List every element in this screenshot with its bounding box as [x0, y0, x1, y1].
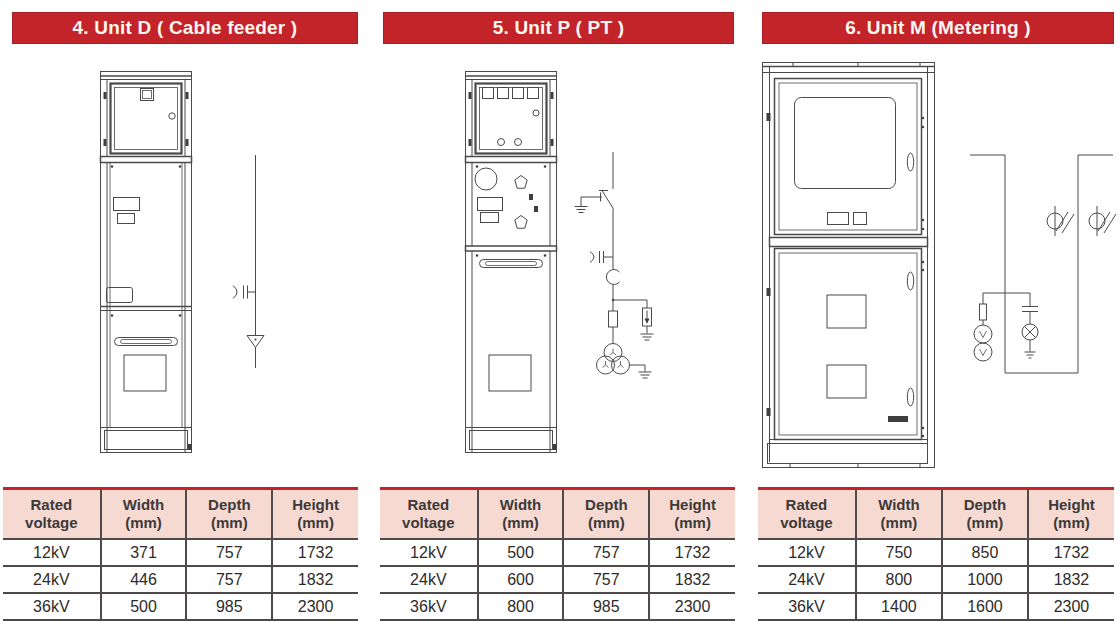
- cell-width: 446: [101, 566, 187, 593]
- spec-row-24kv: 24kV 446 757 1832: [3, 566, 358, 593]
- cell-rated-voltage: 24kV: [380, 566, 478, 593]
- cell-rated-voltage: 12kV: [3, 539, 101, 566]
- unit-m-drawing: [758, 55, 1120, 475]
- unit-d-banner: 4. Unit D ( Cable feeder ): [12, 12, 358, 44]
- cell-height: 2300: [1028, 593, 1114, 620]
- voltmeter-symbol: [974, 325, 992, 343]
- cell-rated-voltage: 12kV: [380, 539, 478, 566]
- unit-d-drawing: [88, 55, 350, 470]
- voltmeter-branch: [974, 293, 992, 361]
- cell-depth: 1600: [942, 593, 1028, 620]
- col-header-rated-voltage: Rated voltage: [3, 489, 101, 540]
- current-transformer-symbol: [1047, 206, 1074, 236]
- cell-depth: 757: [186, 539, 272, 566]
- unit-m-title: 6. Unit M (Metering ): [845, 17, 1031, 39]
- cell-rated-voltage: 12kV: [758, 539, 856, 566]
- cell-width: 500: [101, 593, 187, 620]
- fuse-symbol: [980, 304, 987, 320]
- spec-row-12kv: 12kV 500 757 1732: [380, 539, 735, 566]
- brand-label: [888, 416, 908, 422]
- unit-p-spec-table: Rated voltage Width (mm) Depth (mm) Heig…: [380, 487, 735, 621]
- cell-height: 2300: [272, 593, 358, 620]
- spec-row-24kv: 24kV 600 757 1832: [380, 566, 735, 593]
- cell-width: 500: [478, 539, 564, 566]
- catalog-page: 4. Unit D ( Cable feeder ) 5. Unit P ( P…: [0, 0, 1120, 621]
- cell-depth: 850: [942, 539, 1028, 566]
- unit-m-spec-table: Rated voltage Width (mm) Depth (mm) Heig…: [758, 487, 1114, 621]
- spec-row-12kv: 12kV 371 757 1732: [3, 539, 358, 566]
- unit-p-title: 5. Unit P ( PT ): [493, 17, 625, 39]
- unit-m-cabinet-drawing: [763, 63, 935, 468]
- cell-rated-voltage: 36kV: [3, 593, 101, 620]
- unit-p-drawing: [455, 55, 670, 470]
- pt-transformer-symbol: [597, 344, 630, 375]
- cell-depth: 757: [563, 539, 649, 566]
- unit-m-circuit-diagram: [970, 155, 1116, 373]
- fuse-switch-symbol: [606, 270, 619, 285]
- cell-width: 800: [856, 566, 942, 593]
- voltage-indicator-symbol: [233, 286, 256, 299]
- cell-height: 1832: [1028, 566, 1114, 593]
- cell-depth: 985: [186, 593, 272, 620]
- spec-row-24kv: 24kV 800 1000 1832: [758, 566, 1114, 593]
- unit-p-cabinet-drawing: [466, 72, 557, 453]
- spec-row-36kv: 36kV 1400 1600 2300: [758, 593, 1114, 620]
- spec-header-row: Rated voltage Width (mm) Depth (mm) Heig…: [758, 489, 1114, 540]
- unit-d-circuit-diagram: [233, 155, 264, 368]
- cell-depth: 757: [186, 566, 272, 593]
- spec-row-12kv: 12kV 750 850 1732: [758, 539, 1114, 566]
- lamp-branch: [1022, 293, 1038, 358]
- col-header-depth: Depth (mm): [563, 489, 649, 540]
- unit-p-banner: 5. Unit P ( PT ): [383, 12, 734, 44]
- cell-height: 1832: [272, 566, 358, 593]
- col-header-height: Height (mm): [649, 489, 735, 540]
- col-header-height: Height (mm): [272, 489, 358, 540]
- voltage-indicator-symbol: [590, 251, 613, 263]
- earth-switch-symbol: [575, 193, 603, 213]
- cell-height: 1732: [272, 539, 358, 566]
- cell-width: 750: [856, 539, 942, 566]
- cell-height: 2300: [649, 593, 735, 620]
- spec-row-36kv: 36kV 500 985 2300: [3, 593, 358, 620]
- cell-rated-voltage: 24kV: [758, 566, 856, 593]
- cell-width: 1400: [856, 593, 942, 620]
- cell-width: 800: [478, 593, 564, 620]
- unit-d-cabinet-drawing: [101, 72, 192, 453]
- cell-depth: 757: [563, 566, 649, 593]
- cell-height: 1832: [649, 566, 735, 593]
- cell-depth: 1000: [942, 566, 1028, 593]
- col-header-depth: Depth (mm): [942, 489, 1028, 540]
- cell-width: 600: [478, 566, 564, 593]
- spec-row-36kv: 36kV 800 985 2300: [380, 593, 735, 620]
- unit-p-circuit-diagram: [575, 152, 654, 378]
- transformer-earth-symbol: [630, 365, 652, 378]
- unit-d-title: 4. Unit D ( Cable feeder ): [73, 17, 298, 39]
- fuse-symbol: [609, 311, 618, 327]
- cable-termination-symbol: [247, 336, 264, 348]
- cell-rated-voltage: 24kV: [3, 566, 101, 593]
- unit-m-banner: 6. Unit M (Metering ): [762, 12, 1114, 44]
- unit-d-spec-table: Rated voltage Width (mm) Depth (mm) Heig…: [3, 487, 358, 621]
- voltmeter-symbol: [974, 343, 992, 361]
- cell-rated-voltage: 36kV: [380, 593, 478, 620]
- current-transformer-symbol: [1089, 206, 1116, 236]
- disconnector-switch-symbol: [599, 191, 614, 210]
- col-header-rated-voltage: Rated voltage: [380, 489, 478, 540]
- col-header-height: Height (mm): [1028, 489, 1114, 540]
- cell-depth: 985: [563, 593, 649, 620]
- cell-width: 371: [101, 539, 187, 566]
- cell-rated-voltage: 36kV: [758, 593, 856, 620]
- spec-header-row: Rated voltage Width (mm) Depth (mm) Heig…: [380, 489, 735, 540]
- col-header-depth: Depth (mm): [186, 489, 272, 540]
- cell-height: 1732: [649, 539, 735, 566]
- col-header-rated-voltage: Rated voltage: [758, 489, 856, 540]
- cell-height: 1732: [1028, 539, 1114, 566]
- col-header-width: Width (mm): [101, 489, 187, 540]
- surge-arrester-symbol: [641, 300, 654, 340]
- spec-header-row: Rated voltage Width (mm) Depth (mm) Heig…: [3, 489, 358, 540]
- col-header-width: Width (mm): [856, 489, 942, 540]
- col-header-width: Width (mm): [478, 489, 564, 540]
